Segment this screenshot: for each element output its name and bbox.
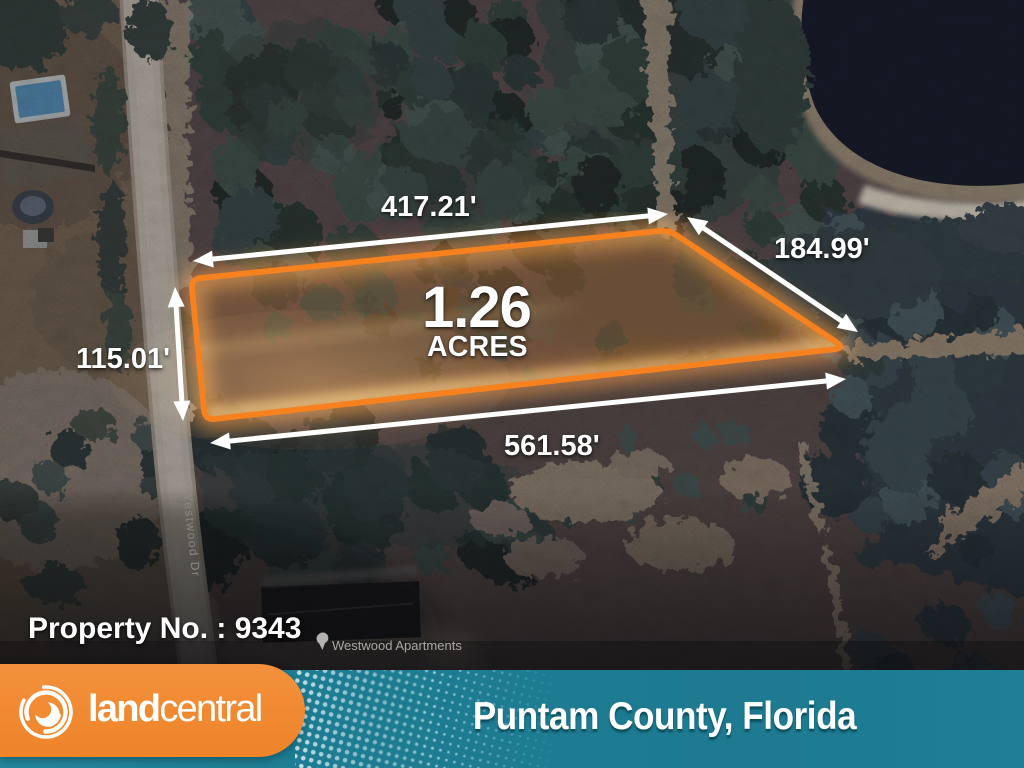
svg-text:Westwood Apartments: Westwood Apartments (332, 638, 462, 653)
